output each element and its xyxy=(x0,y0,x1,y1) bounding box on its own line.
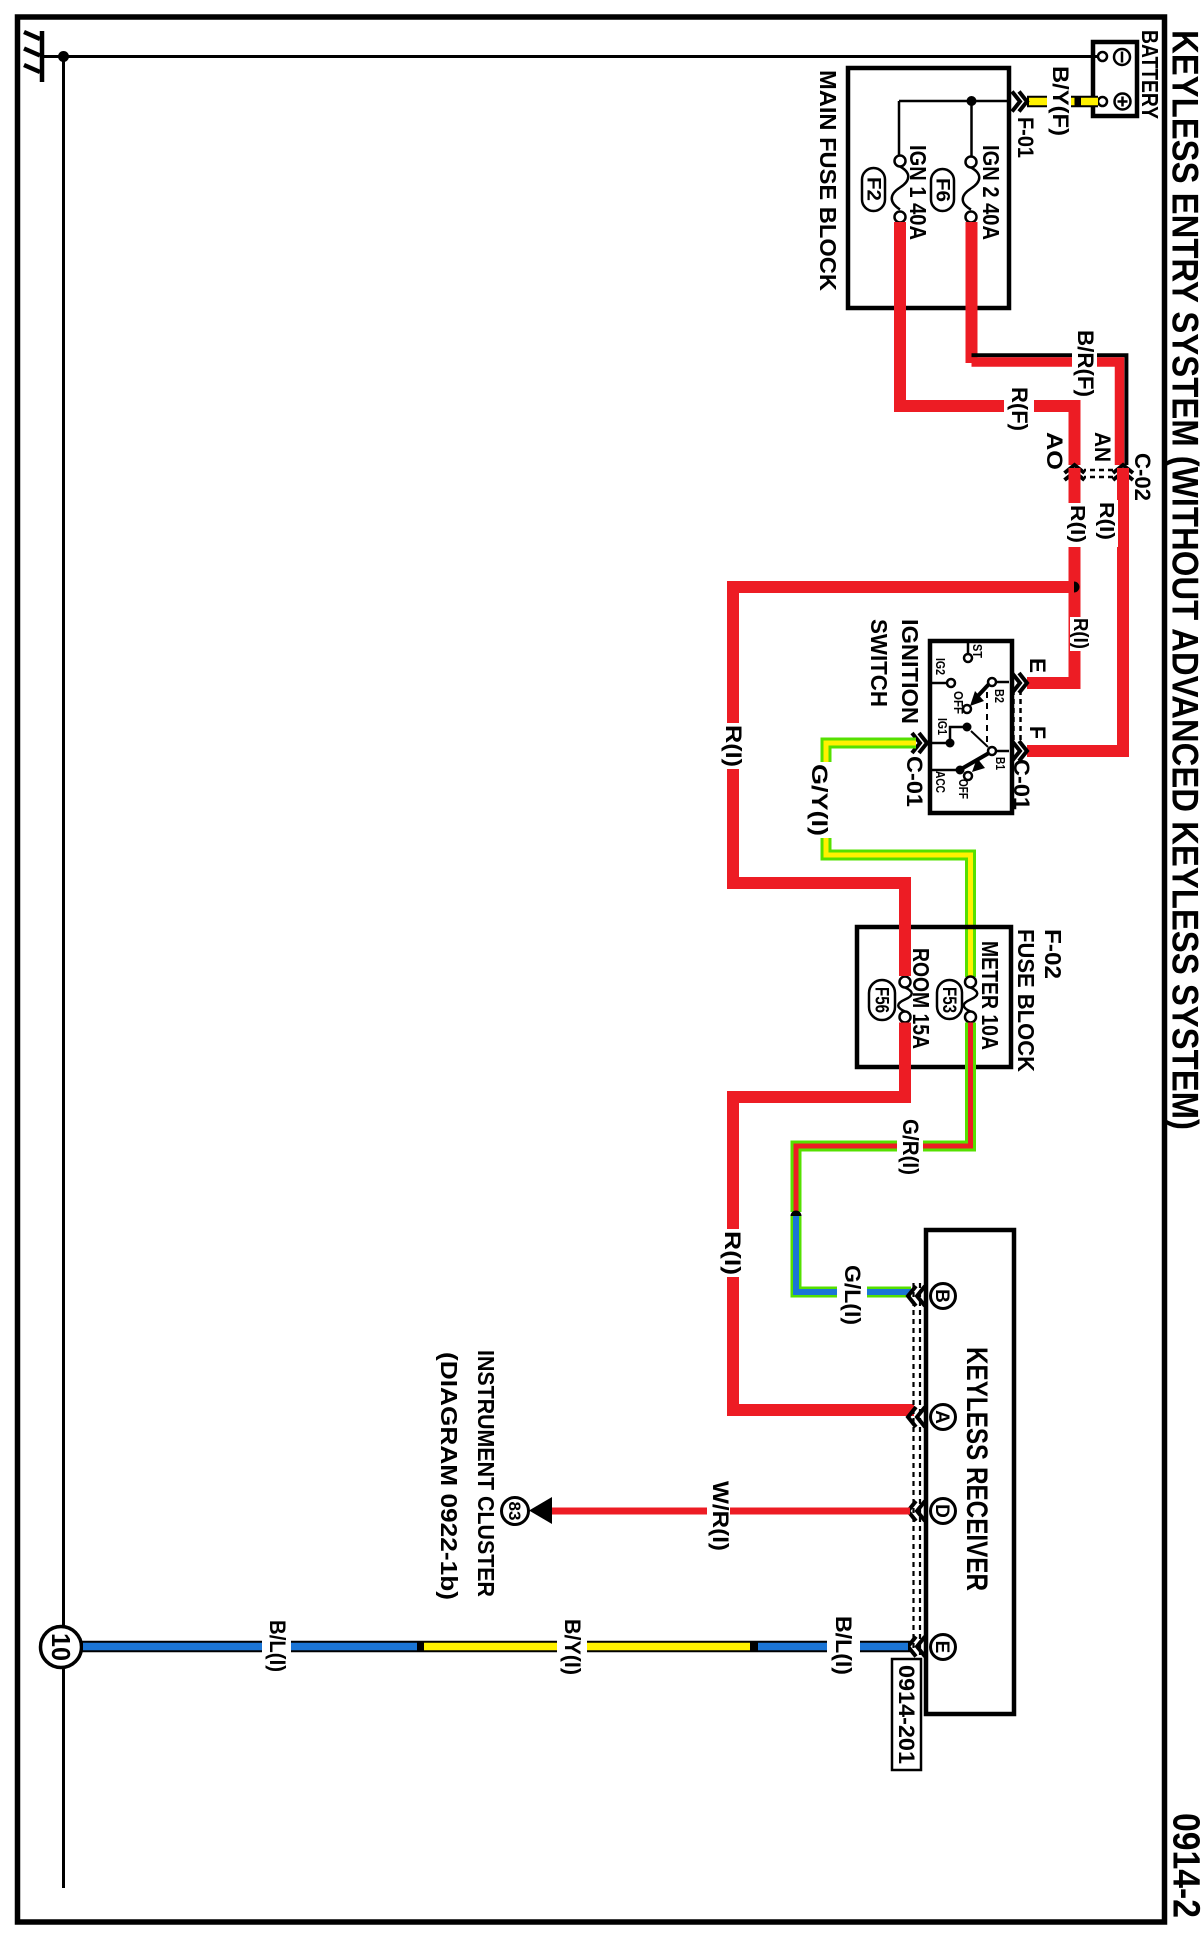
svg-text:C-02: C-02 xyxy=(1130,453,1155,501)
svg-text:C-01: C-01 xyxy=(902,756,927,807)
svg-text:B/L(I): B/L(I) xyxy=(265,1620,290,1672)
svg-text:METER 10A: METER 10A xyxy=(977,941,1003,1050)
svg-text:AO: AO xyxy=(1042,432,1067,470)
svg-text:IGN 1 40A: IGN 1 40A xyxy=(905,145,931,240)
svg-text:IG1: IG1 xyxy=(935,718,950,735)
svg-text:83: 83 xyxy=(505,1502,524,1521)
svg-text:R(I): R(I) xyxy=(1069,618,1091,649)
svg-text:B1: B1 xyxy=(993,757,1008,770)
svg-text:R(I): R(I) xyxy=(1095,502,1117,540)
svg-text:SWITCH: SWITCH xyxy=(866,619,892,707)
svg-text:R(F): R(F) xyxy=(1007,387,1032,431)
svg-text:F: F xyxy=(1025,726,1050,739)
svg-text:IGNITION: IGNITION xyxy=(897,619,923,724)
svg-text:FUSE BLOCK: FUSE BLOCK xyxy=(1013,929,1039,1072)
svg-text:OFF: OFF xyxy=(956,779,971,799)
svg-text:W/R(I): W/R(I) xyxy=(708,1481,733,1551)
svg-text:D: D xyxy=(931,1504,952,1518)
svg-text:ACC: ACC xyxy=(933,771,948,793)
svg-text:F-02: F-02 xyxy=(1040,929,1066,979)
svg-text:ST: ST xyxy=(970,644,985,658)
svg-text:IG2: IG2 xyxy=(933,658,948,675)
svg-text:B/R(F): B/R(F) xyxy=(1073,330,1098,397)
svg-text:INSTRUMENT CLUSTER: INSTRUMENT CLUSTER xyxy=(473,1350,499,1597)
svg-text:B/Y(I): B/Y(I) xyxy=(560,1619,585,1675)
svg-text:B/L(I): B/L(I) xyxy=(831,1616,856,1675)
svg-text:B/Y(F): B/Y(F) xyxy=(1048,66,1073,136)
svg-text:B2: B2 xyxy=(992,689,1007,703)
svg-text:ROOM 15A: ROOM 15A xyxy=(908,948,934,1049)
svg-text:E: E xyxy=(1025,658,1050,673)
svg-text:C-01: C-01 xyxy=(1009,759,1034,810)
svg-text:R(I): R(I) xyxy=(1066,505,1088,543)
svg-text:0914-201: 0914-201 xyxy=(894,1665,919,1764)
svg-text:F53: F53 xyxy=(938,987,959,1013)
svg-text:R(I): R(I) xyxy=(720,1231,745,1275)
svg-text:AN: AN xyxy=(1090,432,1115,462)
svg-text:E: E xyxy=(931,1641,952,1654)
svg-text:G/L(I): G/L(I) xyxy=(840,1265,865,1325)
svg-text:(DIAGRAM 0922-1b): (DIAGRAM 0922-1b) xyxy=(436,1352,462,1600)
svg-text:MAIN FUSE BLOCK: MAIN FUSE BLOCK xyxy=(815,70,841,291)
svg-text:F56: F56 xyxy=(871,987,892,1013)
svg-text:R(I): R(I) xyxy=(721,725,746,767)
svg-text:F6: F6 xyxy=(932,178,953,202)
svg-text:KEYLESS ENTRY SYSTEM (WITHOUT: KEYLESS ENTRY SYSTEM (WITHOUT ADVANCED K… xyxy=(1165,30,1204,1130)
svg-text:F2: F2 xyxy=(863,177,884,201)
svg-text:KEYLESS RECEIVER: KEYLESS RECEIVER xyxy=(960,1347,993,1591)
svg-text:F-01: F-01 xyxy=(1013,117,1038,158)
svg-text:B: B xyxy=(931,1289,952,1303)
svg-text:A: A xyxy=(931,1410,952,1424)
svg-text:0914-2: 0914-2 xyxy=(1165,1813,1204,1918)
svg-text:G/R(I): G/R(I) xyxy=(898,1119,923,1175)
svg-text:IGN 2 40A: IGN 2 40A xyxy=(978,145,1004,240)
svg-text:10: 10 xyxy=(46,1633,76,1661)
svg-text:BATTERY: BATTERY xyxy=(1137,30,1163,119)
svg-text:OFF: OFF xyxy=(951,691,966,714)
svg-text:G/Y(I): G/Y(I) xyxy=(807,764,832,836)
